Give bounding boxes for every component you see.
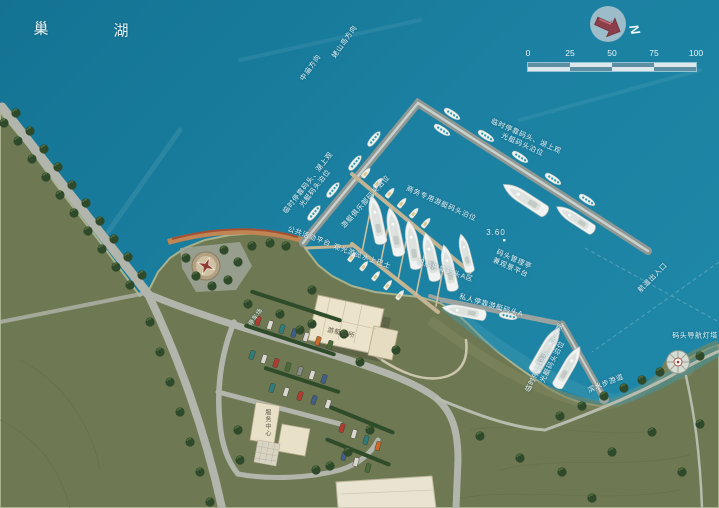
scale-tick: 50 [607, 48, 616, 58]
elevation-label: 3.60 [486, 228, 506, 238]
waterfront-building [336, 476, 436, 508]
scale-tick: 0 [526, 48, 531, 58]
lighthouse-label: 码头导航灯塔 [672, 331, 718, 340]
north-arrow-icon [590, 6, 626, 42]
lake-name-char-2: 湖 [113, 22, 130, 42]
lake-name-char-1: 巢 [33, 20, 50, 40]
service-center-label: 服务中心 [262, 409, 270, 437]
compass [590, 6, 626, 42]
scale-bar-segments [528, 63, 696, 71]
navigation-lighthouse [667, 351, 690, 374]
scale-bar: 0 25 50 75 100 [524, 48, 700, 74]
elevation-marker [503, 239, 505, 241]
marina-master-plan-map: 巢 湖 姥山岛方向 中庙方向 临时停靠码头、湖上观 光艇码头泊位 临时停靠码头、… [0, 0, 719, 508]
scale-tick: 100 [689, 48, 703, 58]
scale-tick: 25 [565, 48, 574, 58]
scale-tick: 75 [649, 48, 658, 58]
